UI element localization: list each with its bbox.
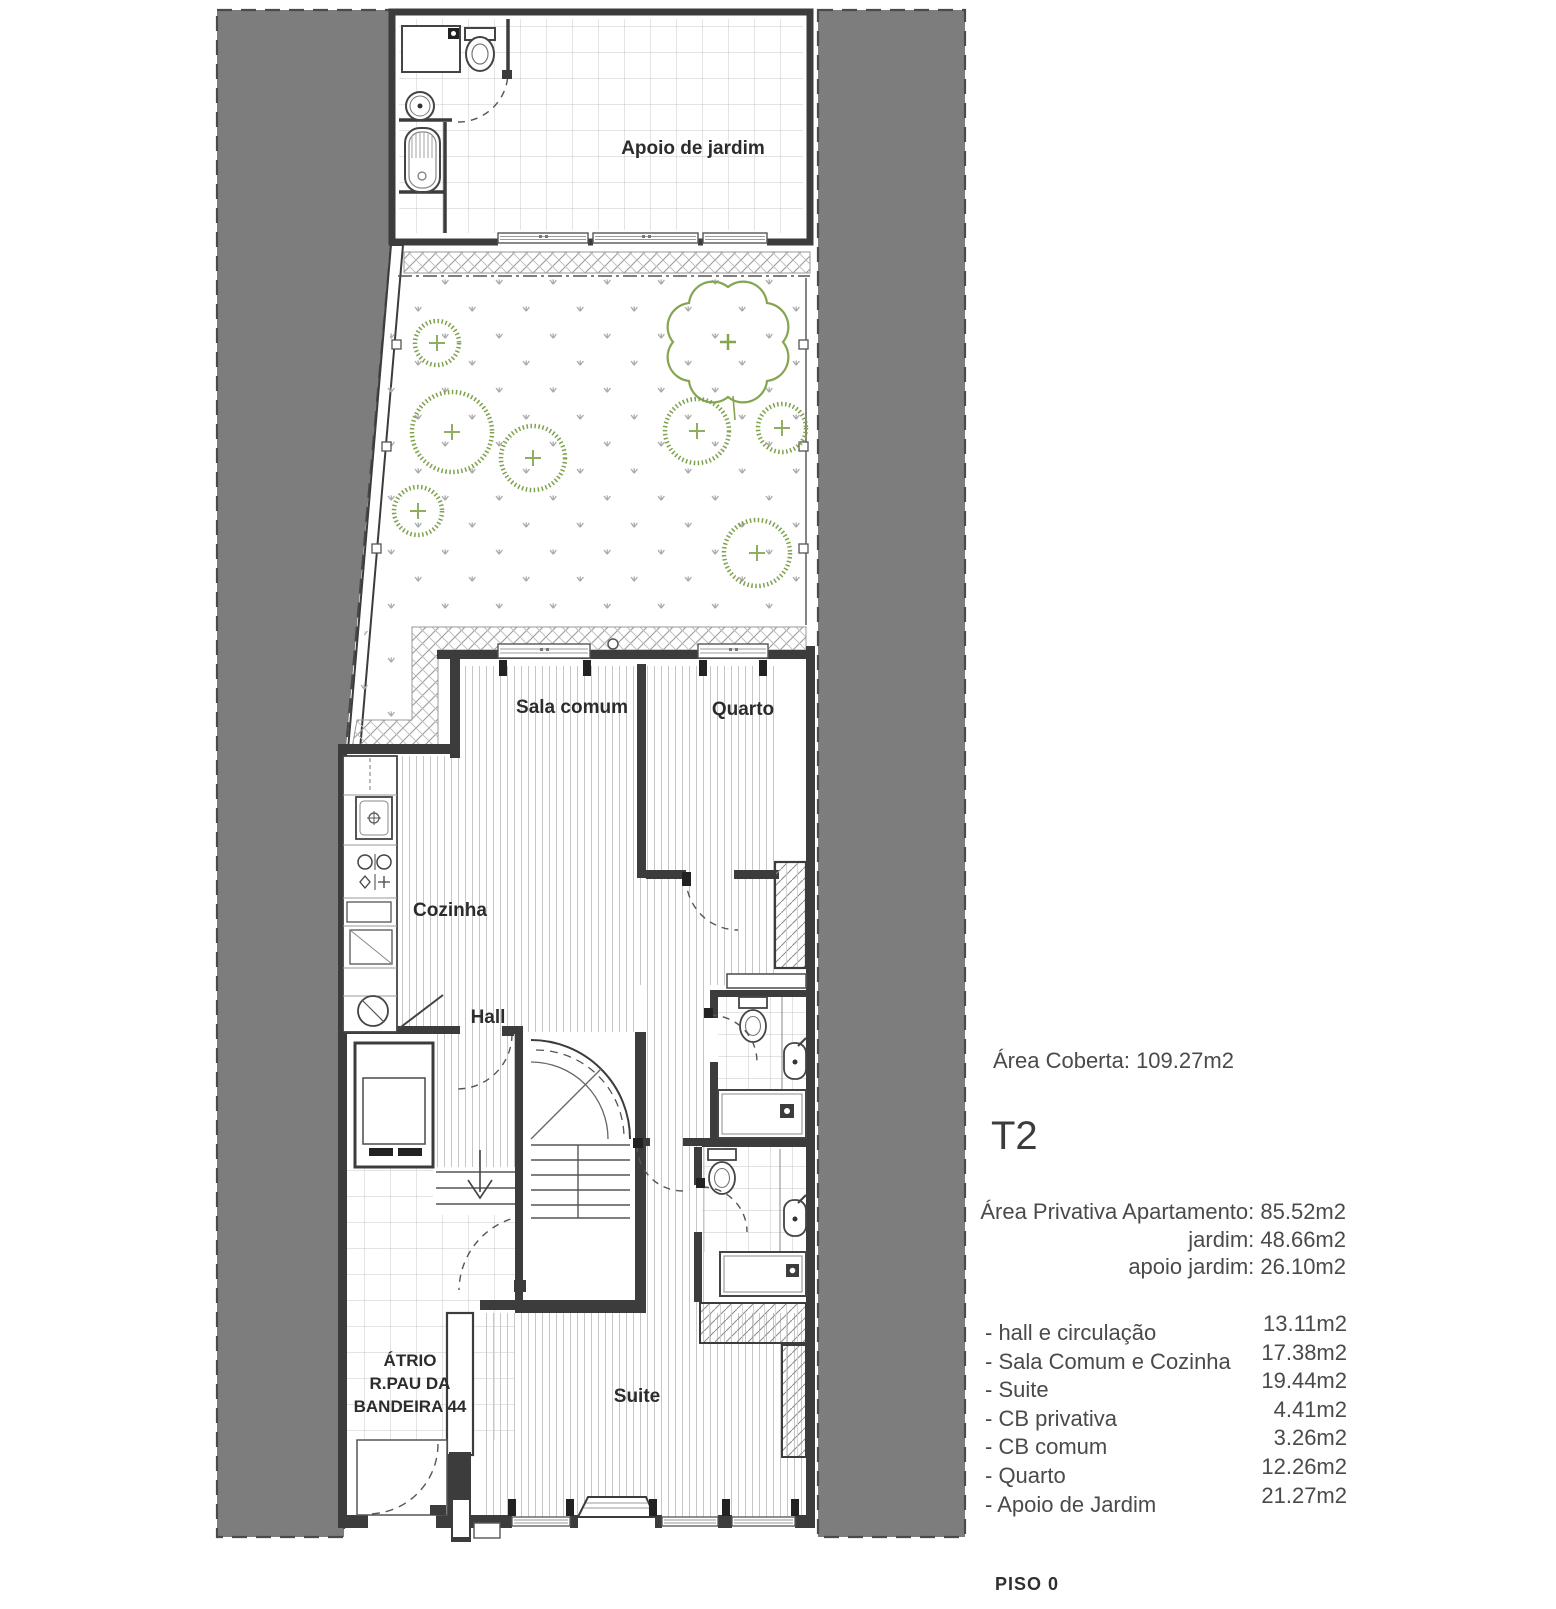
bathtub bbox=[405, 128, 440, 192]
washing-machine bbox=[406, 92, 434, 120]
room-label-suite: Suite bbox=[614, 1386, 660, 1407]
bathroom-cb-privativa bbox=[696, 1147, 806, 1296]
toilet bbox=[465, 28, 495, 71]
entrance bbox=[357, 1440, 500, 1542]
floor-plan-sheet: Apoio de jardim Sala comum Quarto Cozinh… bbox=[0, 0, 1556, 1609]
room-area-value: 17.38m2 bbox=[1261, 1340, 1347, 1366]
shelf bbox=[727, 974, 806, 988]
room-area-value: 3.26m2 bbox=[1274, 1425, 1347, 1451]
room-label-apoio-jardim: Apoio de jardim bbox=[621, 138, 765, 159]
room-area-value: 19.44m2 bbox=[1261, 1368, 1347, 1394]
atrio-label-line3: BANDEIRA 44 bbox=[354, 1397, 467, 1416]
room-area-value: 4.41m2 bbox=[1274, 1397, 1347, 1423]
apoio-de-jardim-room bbox=[392, 12, 810, 246]
room-areas-list: - hall e circulação 13.11m2 - Sala Comum… bbox=[985, 1320, 1347, 1520]
wardrobe bbox=[775, 862, 806, 968]
room-name: - hall e circulação bbox=[985, 1320, 1156, 1346]
room-name: - CB privativa bbox=[985, 1406, 1117, 1432]
window bbox=[593, 230, 698, 246]
private-area-line: apoio jardim: 26.10m2 bbox=[980, 1253, 1346, 1281]
hall-area bbox=[637, 878, 775, 985]
elevator-shaft bbox=[355, 1043, 433, 1167]
private-area-line: Área Privativa Apartamento: 85.52m2 bbox=[980, 1198, 1346, 1226]
open-door-leaf bbox=[452, 1497, 470, 1541]
room-label-quarto: Quarto bbox=[712, 699, 774, 720]
corridor bbox=[433, 1032, 515, 1167]
list-item: - Apoio de Jardim 21.27m2 bbox=[985, 1492, 1347, 1521]
room-area-value: 12.26m2 bbox=[1261, 1454, 1347, 1480]
room-name: - Apoio de Jardim bbox=[985, 1492, 1156, 1518]
room-cozinha bbox=[397, 756, 637, 1032]
atrio-label-line2: R.PAU DA bbox=[370, 1374, 451, 1393]
typology-title: T2 bbox=[991, 1114, 1038, 1159]
door-jamb bbox=[633, 1138, 643, 1148]
room-label-hall: Hall bbox=[471, 1007, 506, 1028]
room-quarto bbox=[646, 666, 775, 878]
wardrobe bbox=[782, 1345, 806, 1457]
paving-strip bbox=[404, 252, 810, 273]
window bbox=[703, 230, 767, 246]
room-name: - Quarto bbox=[985, 1463, 1066, 1489]
private-areas-block: Área Privativa Apartamento: 85.52m2 jard… bbox=[980, 1198, 1346, 1281]
atrio-label-line1: ÁTRIO bbox=[384, 1351, 437, 1370]
counter bbox=[402, 26, 460, 72]
window bbox=[498, 230, 588, 246]
kitchen-sink bbox=[356, 797, 392, 839]
private-area-line: jardim: 48.66m2 bbox=[980, 1226, 1346, 1254]
neighbor-building-right bbox=[818, 10, 965, 1537]
room-name: - Sala Comum e Cozinha bbox=[985, 1349, 1231, 1375]
door-jamb bbox=[682, 872, 691, 886]
wardrobe bbox=[700, 1303, 806, 1343]
room-name: - Suite bbox=[985, 1377, 1049, 1403]
room-label-cozinha: Cozinha bbox=[413, 900, 487, 921]
room-area-value: 13.11m2 bbox=[1263, 1311, 1347, 1337]
covered-area-text: Área Coberta: 109.27m2 bbox=[993, 1048, 1234, 1074]
floor-level-label: PISO 0 bbox=[995, 1574, 1059, 1595]
room-name: - CB comum bbox=[985, 1434, 1107, 1460]
room-label-sala-comum: Sala comum bbox=[516, 697, 628, 718]
room-area-value: 21.27m2 bbox=[1261, 1483, 1347, 1509]
bathroom-cb-comum bbox=[704, 974, 806, 1138]
bay-window bbox=[578, 1497, 655, 1517]
